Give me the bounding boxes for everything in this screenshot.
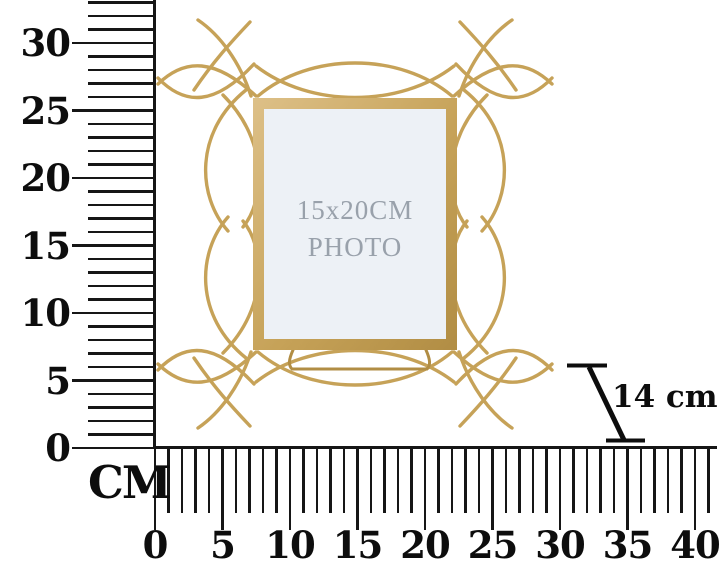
vertical-ruler-tick: [88, 55, 155, 57]
vertical-ruler-tick: [72, 447, 155, 449]
wire-decoration-bottom-left: [158, 217, 259, 428]
depth-label: 14 cm: [612, 379, 718, 415]
vertical-ruler-tick: [88, 1, 155, 3]
horizontal-ruler-tick: [707, 448, 709, 513]
horizontal-ruler-label: 10: [255, 526, 325, 564]
horizontal-ruler-label: 0: [120, 526, 190, 564]
horizontal-ruler-tick: [343, 448, 345, 513]
horizontal-ruler-tick: [572, 448, 574, 513]
wire-decoration-top-left: [158, 20, 259, 231]
vertical-ruler-tick: [88, 285, 155, 287]
horizontal-ruler-tick: [667, 448, 669, 513]
vertical-ruler-tick: [72, 42, 155, 44]
horizontal-ruler-tick: [626, 448, 628, 530]
vertical-ruler-tick: [88, 96, 155, 98]
horizontal-ruler-tick: [680, 448, 682, 513]
horizontal-ruler-label: 35: [593, 526, 663, 564]
vertical-ruler-label: 0: [8, 429, 70, 467]
vertical-ruler-tick: [88, 136, 155, 138]
horizontal-ruler-tick: [221, 448, 223, 530]
vertical-ruler-tick: [88, 217, 155, 219]
horizontal-ruler-label: 40: [660, 526, 720, 564]
horizontal-ruler-tick: [316, 448, 318, 513]
vertical-ruler-tick: [72, 244, 155, 246]
horizontal-ruler-tick: [505, 448, 507, 513]
vertical-ruler-tick: [88, 258, 155, 260]
product-dimension-diagram: 15x20CM PHOTO 051015202530 0510152025303…: [0, 0, 720, 582]
vertical-ruler-label: 30: [8, 24, 70, 62]
horizontal-ruler-label: 25: [458, 526, 528, 564]
horizontal-ruler-tick: [437, 448, 439, 513]
vertical-ruler-tick: [88, 150, 155, 152]
wire-decoration-bottom-right: [451, 217, 552, 428]
horizontal-ruler-tick: [586, 448, 588, 513]
horizontal-ruler-tick: [478, 448, 480, 513]
horizontal-ruler-label: 30: [525, 526, 595, 564]
horizontal-ruler-tick: [491, 448, 493, 530]
horizontal-ruler-label: 5: [188, 526, 258, 564]
horizontal-ruler-tick: [451, 448, 453, 513]
vertical-ruler-label: 20: [8, 159, 70, 197]
vertical-ruler-tick: [88, 69, 155, 71]
vertical-ruler-tick: [88, 339, 155, 341]
vertical-ruler-tick: [88, 204, 155, 206]
vertical-ruler-tick: [88, 82, 155, 84]
vertical-ruler-tick: [88, 420, 155, 422]
vertical-ruler-label: 15: [8, 227, 70, 265]
horizontal-ruler-tick: [545, 448, 547, 513]
horizontal-ruler-tick: [181, 448, 183, 513]
horizontal-ruler-tick: [370, 448, 372, 513]
vertical-ruler-tick: [72, 312, 155, 314]
vertical-ruler-tick: [88, 352, 155, 354]
horizontal-ruler-tick: [289, 448, 291, 530]
horizontal-ruler-tick: [356, 448, 358, 530]
vertical-ruler-tick: [88, 298, 155, 300]
vertical-ruler-tick: [88, 163, 155, 165]
horizontal-ruler-tick: [518, 448, 520, 513]
vertical-ruler-tick: [72, 379, 155, 381]
photo-word-line: PHOTO: [308, 229, 403, 266]
vertical-ruler-tick: [72, 177, 155, 179]
horizontal-ruler-label: 15: [323, 526, 393, 564]
wire-decoration-top-right: [451, 20, 552, 231]
vertical-ruler-tick: [72, 109, 155, 111]
horizontal-ruler-tick: [383, 448, 385, 513]
horizontal-ruler-tick: [694, 448, 696, 530]
horizontal-ruler-tick: [410, 448, 412, 513]
photo-size-label: 15x20CM PHOTO: [264, 109, 446, 339]
horizontal-ruler-tick: [329, 448, 331, 513]
vertical-ruler-tick: [88, 190, 155, 192]
horizontal-ruler-label: 20: [390, 526, 460, 564]
vertical-ruler-tick: [88, 433, 155, 435]
vertical-ruler-tick: [88, 15, 155, 17]
vertical-ruler-tick: [88, 366, 155, 368]
vertical-ruler-tick: [88, 28, 155, 30]
horizontal-ruler-tick: [653, 448, 655, 513]
horizontal-ruler-tick: [599, 448, 601, 513]
horizontal-ruler-tick: [559, 448, 561, 530]
vertical-ruler-tick: [88, 231, 155, 233]
horizontal-ruler-tick: [640, 448, 642, 513]
horizontal-ruler-tick: [397, 448, 399, 513]
horizontal-ruler-tick: [275, 448, 277, 513]
vertical-ruler-label: 25: [8, 92, 70, 130]
horizontal-ruler-line: [153, 446, 717, 449]
photo-size-line: 15x20CM: [297, 192, 414, 229]
horizontal-ruler-tick: [194, 448, 196, 513]
vertical-ruler-tick: [88, 123, 155, 125]
vertical-ruler-tick: [88, 325, 155, 327]
horizontal-ruler-tick: [208, 448, 210, 513]
horizontal-ruler-tick: [302, 448, 304, 513]
horizontal-ruler-tick: [532, 448, 534, 513]
horizontal-ruler-tick: [464, 448, 466, 513]
horizontal-ruler-tick: [424, 448, 426, 530]
vertical-ruler-label: 10: [8, 294, 70, 332]
vertical-ruler-label: 5: [8, 362, 70, 400]
horizontal-ruler-tick: [248, 448, 250, 513]
horizontal-ruler-tick: [235, 448, 237, 513]
horizontal-ruler-tick: [262, 448, 264, 513]
vertical-ruler-tick: [88, 393, 155, 395]
wire-decoration-top-edge: [256, 63, 454, 98]
horizontal-ruler-tick: [613, 448, 615, 513]
cm-unit-label: CM: [88, 456, 170, 509]
vertical-ruler-tick: [88, 271, 155, 273]
vertical-ruler-tick: [88, 406, 155, 408]
